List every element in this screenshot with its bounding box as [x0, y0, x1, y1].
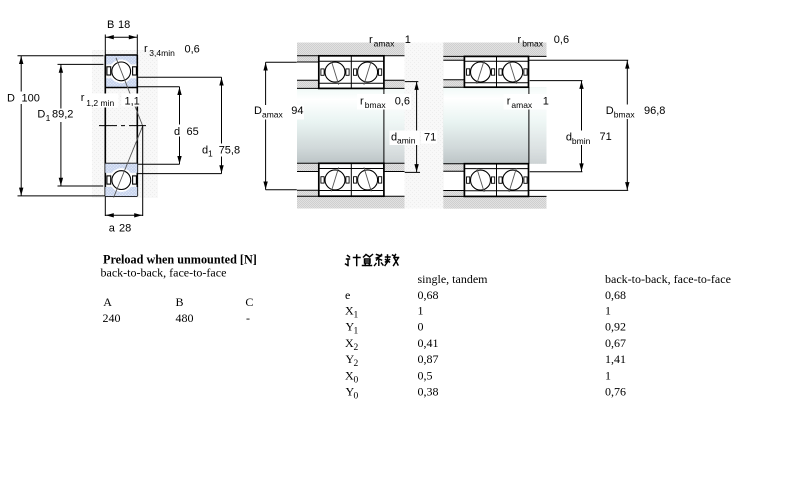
svg-text:1: 1 [605, 304, 611, 318]
svg-text:65: 65 [187, 126, 199, 138]
svg-text:0,6: 0,6 [554, 34, 569, 46]
svg-text:1: 1 [405, 34, 411, 46]
svg-text:r: r [81, 92, 85, 104]
svg-text:0,41: 0,41 [418, 336, 439, 350]
svg-text:r: r [360, 95, 364, 107]
svg-text:r: r [369, 34, 373, 46]
svg-text:1: 1 [543, 96, 549, 108]
svg-text:1: 1 [46, 113, 51, 123]
svg-text:amax: amax [511, 100, 533, 110]
svg-text:1,2 min: 1,2 min [86, 98, 114, 108]
svg-text:0: 0 [418, 320, 424, 334]
svg-text:0,5: 0,5 [418, 368, 433, 382]
svg-text:bmin: bmin [572, 136, 591, 146]
svg-text:e: e [345, 288, 350, 302]
svg-text:100: 100 [22, 93, 40, 105]
svg-text:amax: amax [262, 110, 284, 120]
svg-text:89,2: 89,2 [52, 109, 73, 121]
svg-text:r: r [507, 96, 511, 108]
svg-text:A: A [103, 295, 112, 309]
svg-text:0,92: 0,92 [605, 320, 626, 334]
svg-text:-: - [246, 311, 250, 325]
svg-text:d: d [174, 126, 180, 138]
svg-text:71: 71 [424, 131, 436, 143]
svg-text:0,87: 0,87 [418, 352, 439, 366]
svg-text:bmax: bmax [365, 100, 387, 110]
svg-text:2: 2 [354, 359, 359, 369]
svg-text:71: 71 [600, 131, 612, 143]
svg-text:C: C [245, 295, 253, 309]
svg-text:0: 0 [354, 375, 359, 385]
svg-text:amax: amax [374, 38, 396, 48]
svg-text:D: D [37, 109, 45, 121]
svg-text:0,67: 0,67 [605, 336, 626, 350]
svg-text:1: 1 [418, 304, 424, 318]
svg-text:18: 18 [118, 19, 130, 31]
svg-text:1: 1 [208, 148, 213, 158]
svg-text:back-to-back, face-to-face: back-to-back, face-to-face [101, 266, 227, 280]
svg-text:1: 1 [354, 311, 359, 321]
svg-text:r: r [144, 43, 148, 55]
svg-text:a: a [109, 223, 116, 235]
svg-text:75,8: 75,8 [219, 144, 240, 156]
svg-text:0,6: 0,6 [395, 95, 410, 107]
svg-text:0: 0 [354, 392, 359, 402]
svg-text:3,4min: 3,4min [149, 48, 175, 58]
svg-text:bmax: bmax [522, 38, 544, 48]
svg-text:D: D [7, 93, 15, 105]
svg-text:D: D [254, 105, 262, 117]
svg-text:0,6: 0,6 [185, 44, 200, 56]
svg-text:240: 240 [103, 311, 121, 325]
svg-text:bmax: bmax [614, 110, 636, 120]
svg-text:single, tandem: single, tandem [418, 272, 489, 286]
svg-text:0,68: 0,68 [605, 288, 626, 302]
svg-text:1: 1 [605, 368, 611, 382]
svg-text:480: 480 [176, 311, 194, 325]
svg-text:r: r [518, 34, 522, 46]
svg-text:back-to-back, face-to-face: back-to-back, face-to-face [605, 272, 731, 286]
svg-text:28: 28 [119, 223, 131, 235]
svg-text:D: D [606, 105, 614, 117]
svg-text:B: B [176, 295, 184, 309]
svg-text:1,1: 1,1 [125, 95, 140, 107]
svg-text:2: 2 [354, 343, 359, 353]
svg-text:amin: amin [397, 136, 416, 146]
svg-text:1: 1 [354, 327, 359, 337]
svg-text:96,8: 96,8 [644, 105, 665, 117]
svg-text:0,76: 0,76 [605, 385, 626, 399]
svg-text:1,41: 1,41 [605, 352, 626, 366]
svg-text:94: 94 [291, 105, 303, 117]
svg-text:0,38: 0,38 [418, 385, 439, 399]
svg-text:Preload when unmounted [N]: Preload when unmounted [N] [103, 253, 257, 267]
svg-text:0,68: 0,68 [418, 288, 439, 302]
svg-text:B: B [107, 19, 114, 31]
